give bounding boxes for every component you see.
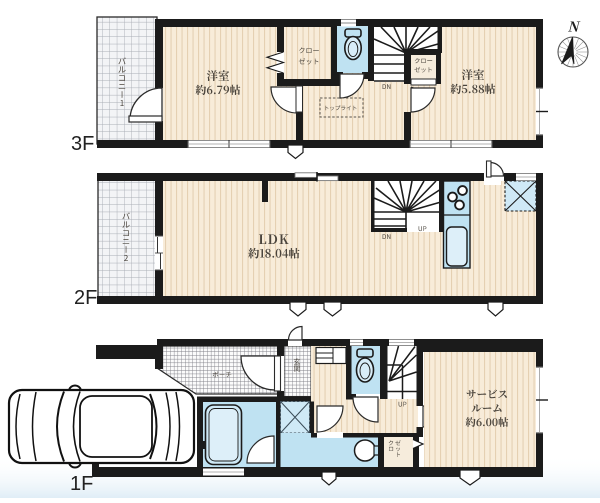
svg-text:3F: 3F xyxy=(71,133,94,155)
svg-text:2F: 2F xyxy=(74,287,97,309)
svg-text:1F: 1F xyxy=(70,473,93,495)
